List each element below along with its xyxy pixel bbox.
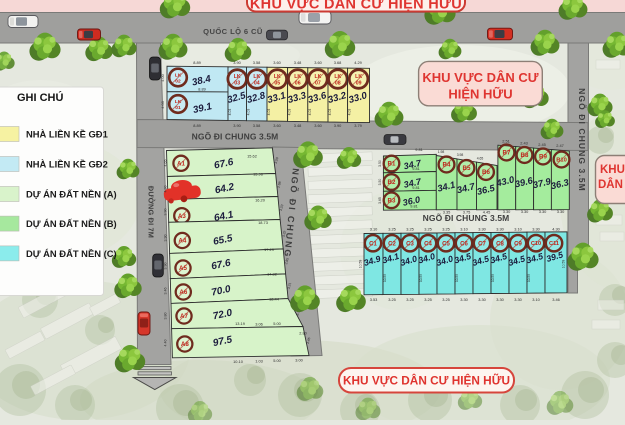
svg-text:3.53: 3.53 [370,297,378,302]
svg-text:3.25: 3.25 [406,297,414,302]
svg-text:C7: C7 [478,241,486,247]
svg-text:4.29: 4.29 [354,60,362,65]
svg-text:3.25: 3.25 [442,226,450,231]
svg-text:3.90: 3.90 [164,235,168,242]
svg-text:A6: A6 [179,289,187,296]
svg-text:LK: LK [334,74,341,80]
svg-text:NHÀ LIỀN KỀ GĐ2: NHÀ LIỀN KỀ GĐ2 [26,158,108,169]
svg-text:3.58: 3.58 [253,60,261,65]
svg-text:HIỆN HỮU: HIỆN HỮU [448,87,512,102]
svg-text:8.89: 8.89 [193,123,201,128]
svg-text:08: 08 [335,80,341,86]
svg-text:3.80: 3.80 [164,313,168,320]
svg-text:9.81: 9.81 [412,166,420,171]
svg-text:B4: B4 [443,162,451,169]
svg-text:DÂN CƯ: DÂN CƯ [598,178,625,191]
svg-text:06: 06 [295,80,301,86]
svg-text:3.75: 3.75 [463,209,471,214]
svg-text:02: 02 [175,79,181,85]
svg-text:4.40: 4.40 [164,340,168,347]
svg-text:DỰ ÁN ĐẤT NỀN (A): DỰ ÁN ĐẤT NỀN (A) [26,188,117,199]
svg-text:B1: B1 [388,161,396,168]
svg-text:03: 03 [234,80,240,86]
svg-text:NGÕ ĐI CHUNG 3.5M: NGÕ ĐI CHUNG 3.5M [192,132,279,142]
svg-text:C11: C11 [549,241,559,247]
svg-text:3.90: 3.90 [164,209,168,216]
svg-text:9.81: 9.81 [412,185,420,190]
svg-text:NHÀ LIỀN KỀ GĐ1: NHÀ LIỀN KỀ GĐ1 [26,128,108,139]
svg-text:9.81: 9.81 [410,203,418,208]
svg-text:B7: B7 [503,150,511,157]
svg-text:3.30: 3.30 [503,209,511,214]
svg-text:2.45: 2.45 [538,142,546,147]
svg-text:3.30: 3.30 [514,297,522,302]
svg-text:QUỐC LỘ 6 CŨ: QUỐC LỘ 6 CŨ [203,26,263,36]
svg-text:C4: C4 [424,241,432,247]
svg-text:3.65: 3.65 [378,197,382,204]
svg-text:4.65: 4.65 [477,156,484,160]
svg-text:10.59: 10.59 [383,274,387,282]
svg-text:LK: LK [175,73,182,79]
svg-text:NGÕ ĐI CHUNG 3.5M: NGÕ ĐI CHUNG 3.5M [423,213,510,223]
svg-text:C8: C8 [496,241,504,247]
svg-text:C1: C1 [369,241,377,247]
svg-text:A3: A3 [178,213,186,220]
svg-text:KHU VỰC DÂN CƯ HIỆN HỮU: KHU VỰC DÂN CƯ HIỆN HỮU [343,374,510,388]
svg-text:1.03: 1.03 [255,358,263,363]
svg-text:3.30: 3.30 [539,209,547,214]
svg-text:5.00: 5.00 [273,321,281,326]
svg-text:3.90: 3.90 [233,123,241,128]
svg-text:C9: C9 [514,241,522,247]
svg-text:4.30: 4.30 [552,226,560,231]
svg-text:10.59: 10.59 [491,274,495,282]
svg-text:2.43: 2.43 [520,140,528,145]
svg-text:B2: B2 [388,179,396,186]
svg-text:A7: A7 [180,313,188,320]
svg-text:10.10: 10.10 [233,359,244,364]
svg-text:4.03: 4.03 [348,109,352,116]
svg-text:C3: C3 [406,241,414,247]
svg-text:A5: A5 [179,265,187,272]
svg-text:13.19: 13.19 [235,321,245,326]
svg-text:3.25: 3.25 [388,297,396,302]
svg-text:3.30: 3.30 [532,226,540,231]
svg-text:3.30: 3.30 [557,209,565,214]
svg-text:3.50: 3.50 [378,179,382,186]
svg-text:4.03: 4.03 [288,109,292,116]
svg-text:B8: B8 [521,152,529,159]
svg-text:3.30: 3.30 [496,297,504,302]
svg-text:A8: A8 [181,341,189,348]
svg-text:LK: LK [175,99,182,105]
svg-text:3.10: 3.10 [532,297,540,302]
svg-text:10.59: 10.59 [419,274,423,282]
svg-text:KHU: KHU [600,164,625,176]
svg-text:3.50: 3.50 [378,160,382,167]
svg-text:4.45: 4.45 [483,209,491,214]
svg-text:3.10: 3.10 [370,226,378,231]
svg-text:LK: LK [234,74,241,80]
svg-text:NGÕ ĐI CHUNG 3.5M: NGÕ ĐI CHUNG 3.5M [577,88,587,192]
svg-text:3.60: 3.60 [314,123,322,128]
svg-text:01: 01 [175,105,181,111]
svg-text:8.89: 8.89 [193,60,201,65]
svg-text:09: 09 [356,80,362,86]
svg-text:8.89: 8.89 [198,86,206,91]
svg-text:3.10: 3.10 [460,226,468,231]
svg-text:18.44: 18.44 [269,297,280,302]
svg-text:3.60: 3.60 [273,123,281,128]
svg-text:C2: C2 [388,241,396,247]
svg-text:4.03: 4.03 [328,109,332,116]
svg-text:15.96: 15.96 [253,171,263,176]
svg-text:C6: C6 [460,241,468,247]
svg-text:17.29: 17.29 [264,247,274,252]
svg-text:3.79: 3.79 [354,123,362,128]
svg-text:2.47: 2.47 [556,143,564,148]
svg-text:15.62: 15.62 [247,154,257,159]
svg-text:3.25: 3.25 [424,297,432,302]
svg-text:10.59: 10.59 [455,274,459,282]
svg-text:3.48: 3.48 [294,60,302,65]
svg-text:3.48: 3.48 [294,123,302,128]
svg-text:B5: B5 [463,165,471,172]
svg-text:C5: C5 [442,241,450,247]
svg-text:1.98: 1.98 [438,150,445,154]
svg-text:17.82: 17.82 [267,272,277,277]
svg-text:LK: LK [314,74,321,80]
svg-text:3.68: 3.68 [334,60,342,65]
svg-text:3.35: 3.35 [443,210,451,215]
svg-text:5.00: 5.00 [273,358,281,363]
svg-text:4.03: 4.03 [308,109,312,116]
svg-text:DỰ ÁN ĐẤT NỀN (B): DỰ ÁN ĐẤT NỀN (B) [26,218,117,229]
svg-text:3.58: 3.58 [253,123,261,128]
svg-text:4.65: 4.65 [164,160,168,167]
svg-text:LK: LK [294,74,301,80]
svg-text:3.25: 3.25 [442,297,450,302]
svg-text:GHI CHÚ: GHI CHÚ [17,91,64,104]
svg-text:10.59: 10.59 [527,274,531,282]
svg-text:3.30: 3.30 [460,297,468,302]
svg-text:LK: LK [253,74,260,80]
svg-text:10.59: 10.59 [562,260,566,269]
svg-text:KHU VỰC DÂN CƯ HIỆN HỮU: KHU VỰC DÂN CƯ HIỆN HỮU [250,0,462,13]
svg-text:4.03: 4.03 [228,109,232,116]
svg-text:3.60: 3.60 [273,60,281,65]
svg-text:9.81: 9.81 [415,147,423,152]
svg-text:3.46: 3.46 [552,297,560,302]
svg-text:A4: A4 [178,238,186,245]
svg-text:3.25: 3.25 [406,226,414,231]
svg-text:3.98: 3.98 [457,153,464,157]
svg-text:3.60: 3.60 [314,60,322,65]
svg-text:3.30: 3.30 [521,209,529,214]
svg-text:07: 07 [315,80,321,86]
svg-text:4.03: 4.03 [160,101,165,109]
svg-text:3.46: 3.46 [164,288,168,295]
svg-text:A1: A1 [177,161,185,168]
svg-text:05: 05 [274,80,280,86]
svg-text:3.30: 3.30 [478,297,486,302]
svg-text:LK: LK [355,74,362,80]
svg-text:DỰ ÁN ĐẤT NỀN (C): DỰ ÁN ĐẤT NỀN (C) [26,248,117,259]
svg-text:3.10: 3.10 [514,226,522,231]
svg-text:3.06: 3.06 [255,321,263,326]
svg-text:3.00: 3.00 [295,357,303,362]
svg-text:LK: LK [274,74,281,80]
svg-text:B9: B9 [539,154,547,161]
svg-text:18.73: 18.73 [258,220,268,225]
svg-text:ĐƯỜNG ĐI 7M: ĐƯỜNG ĐI 7M [147,186,156,238]
svg-text:4.30: 4.30 [164,186,168,193]
svg-text:KHU VỰC DÂN CƯ: KHU VỰC DÂN CƯ [422,70,538,85]
svg-text:3.30: 3.30 [496,226,504,231]
svg-text:3.30: 3.30 [478,226,486,231]
svg-text:3.90: 3.90 [164,263,168,270]
svg-text:B3: B3 [388,198,396,205]
svg-text:2.80: 2.80 [299,331,307,336]
svg-text:04: 04 [254,80,260,86]
svg-text:B10: B10 [556,158,567,164]
svg-text:3.25: 3.25 [388,226,396,231]
svg-text:3.90: 3.90 [334,123,342,128]
svg-text:10.59: 10.59 [359,260,363,269]
svg-text:4.03: 4.03 [247,109,251,116]
svg-text:C10: C10 [531,241,541,247]
svg-text:4.03: 4.03 [267,109,271,116]
svg-text:3.25: 3.25 [424,226,432,231]
svg-text:2.51: 2.51 [502,139,510,144]
svg-text:16.20: 16.20 [255,197,266,202]
svg-text:B6: B6 [482,169,490,176]
